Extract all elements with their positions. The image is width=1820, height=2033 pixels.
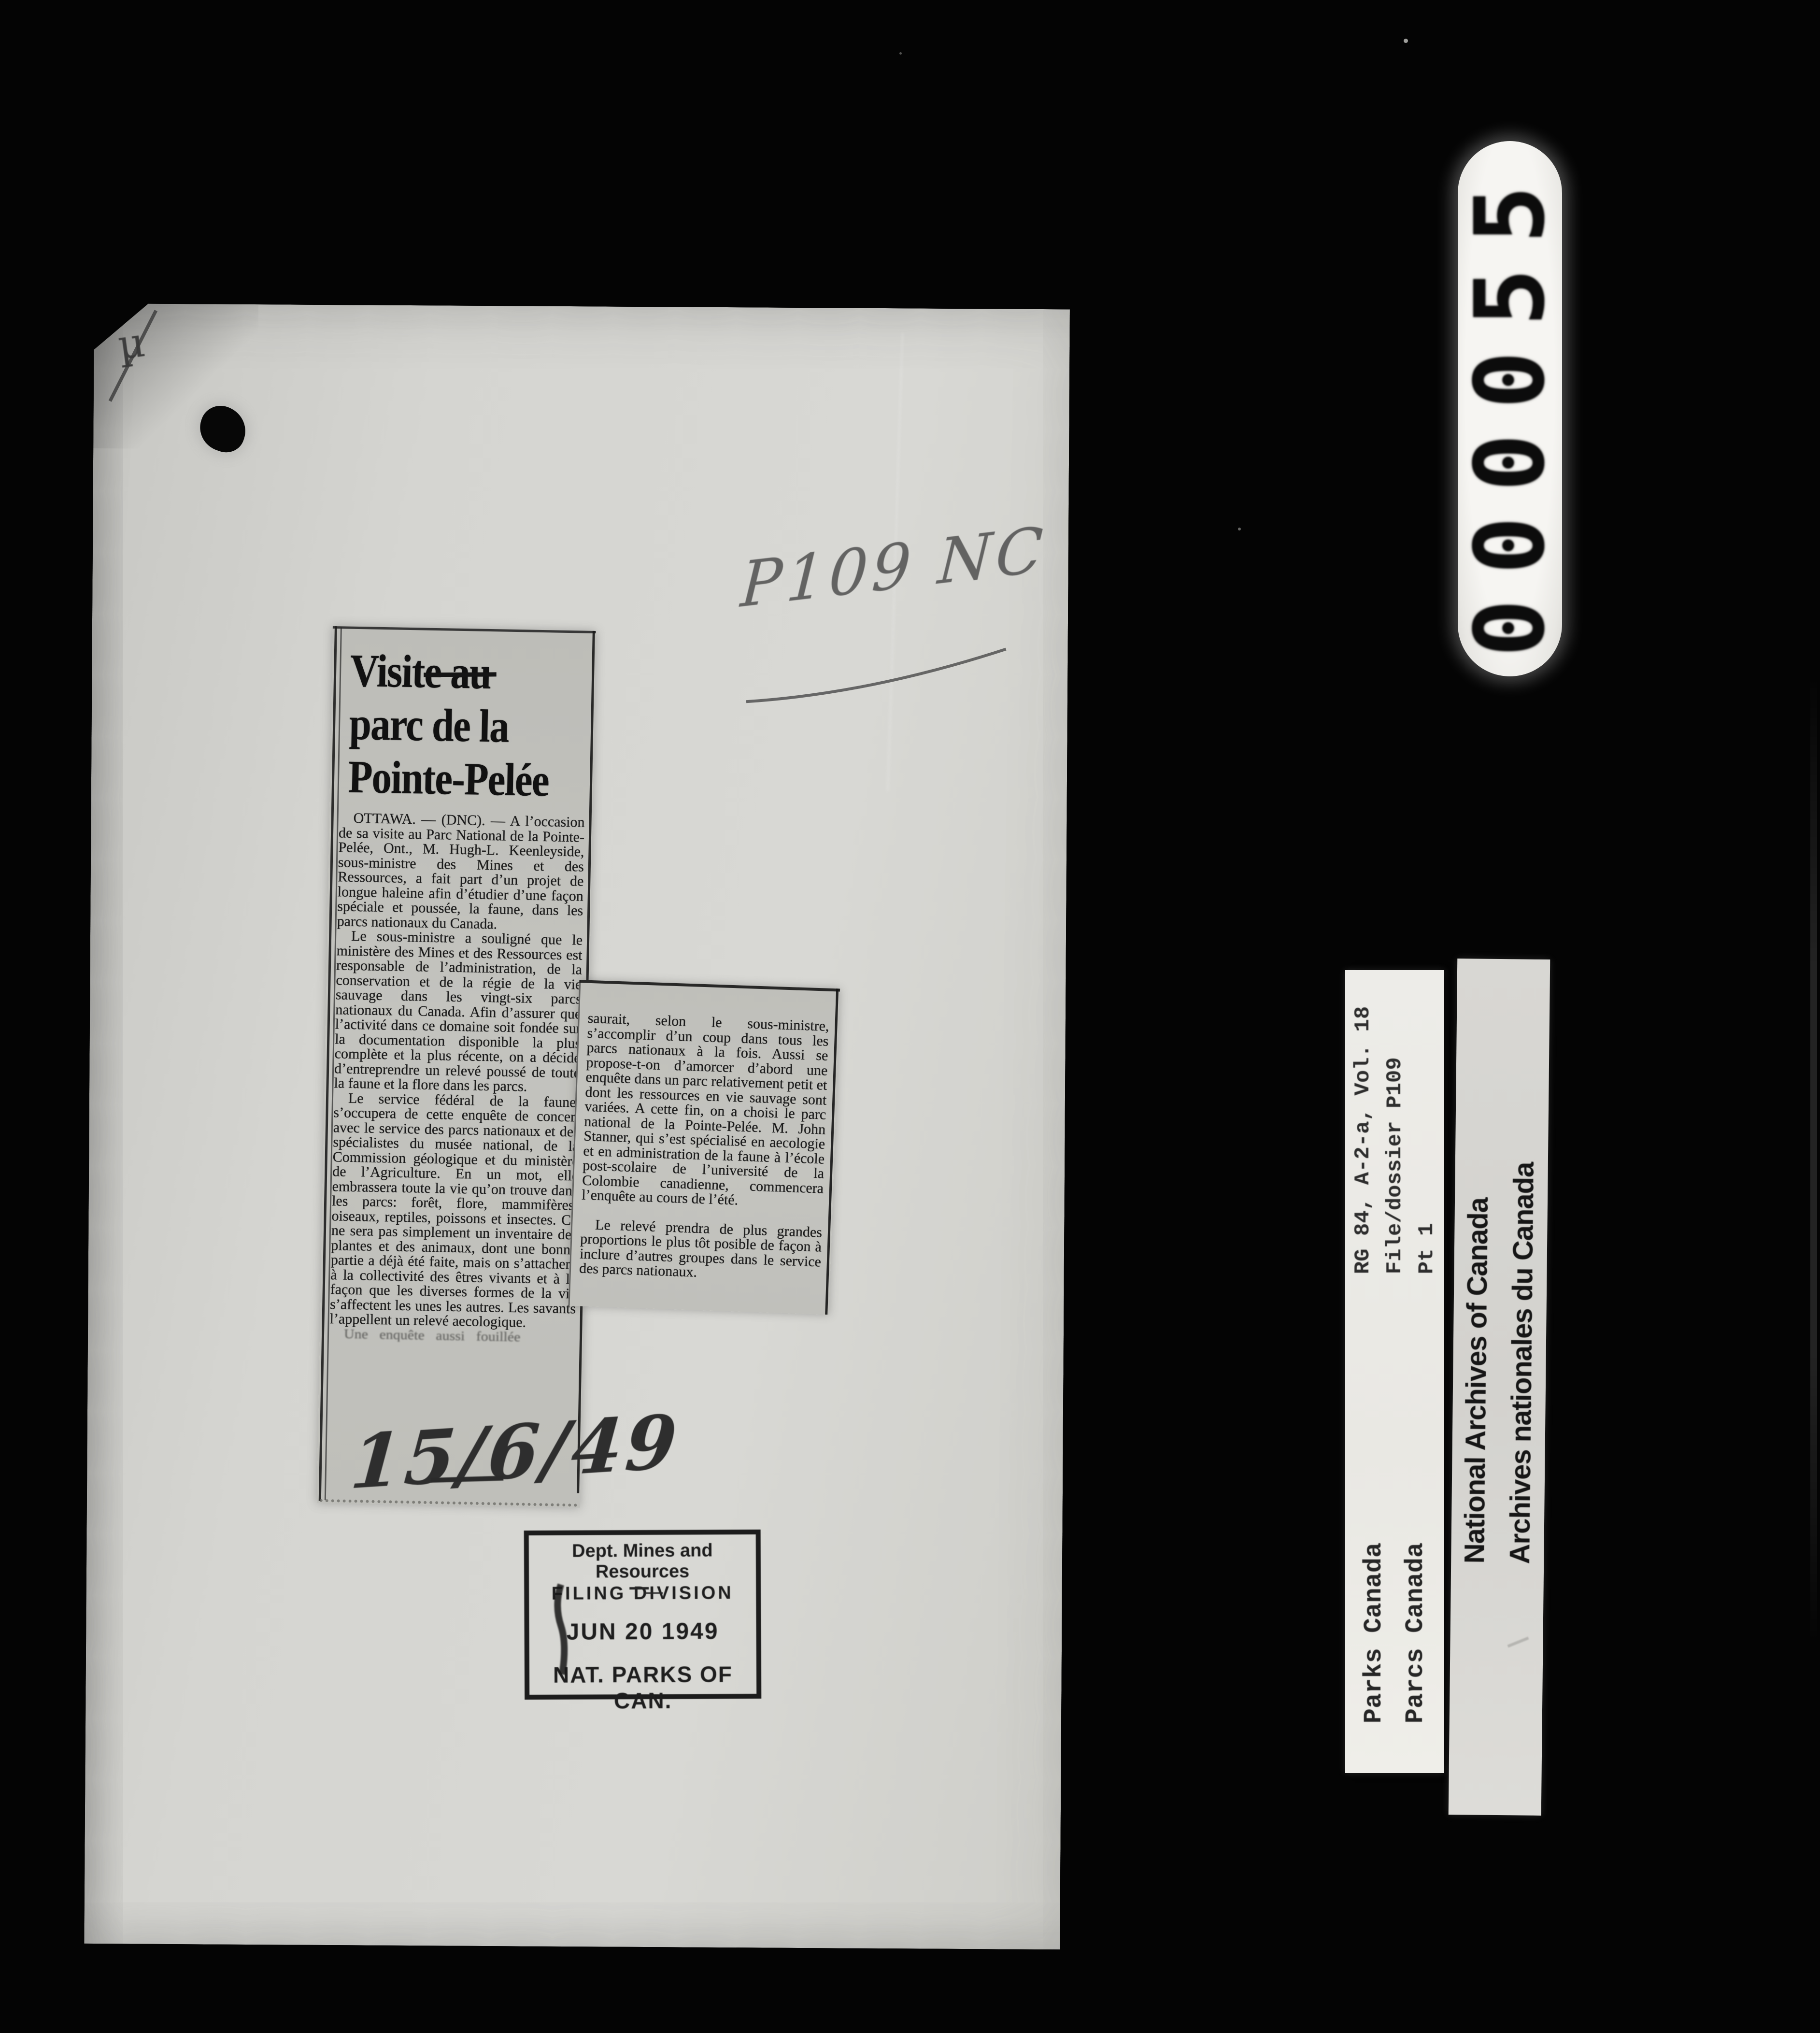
clipping-paragraph: Le sous-ministre a souligné que le minis… xyxy=(334,929,583,1095)
headline-word: Visite xyxy=(350,644,441,698)
headline-line-2: parc de la xyxy=(349,697,554,754)
headline-line-1: Visite au xyxy=(350,644,555,701)
microfilm-scan: µ P109 NC Visite au parc de la Pointe-Pe… xyxy=(0,0,1820,2033)
document-page: µ P109 NC Visite au parc de la Pointe-Pe… xyxy=(84,303,1070,1949)
newspaper-clipping-col1: Visite au parc de la Pointe-Pelée OTTAWA… xyxy=(317,626,596,1508)
clipping-paragraph: Le service fédéral de la faune, s’occupe… xyxy=(329,1091,580,1331)
clipping-paragraph: saurait, selon le sous-ministre, s’accom… xyxy=(582,1011,829,1211)
headline-struck-word: au xyxy=(450,646,491,699)
stamp-tick-marks xyxy=(629,1587,649,1589)
receipt-stamp: Dept. Mines and Resources FILING DIVISIO… xyxy=(524,1530,762,1700)
parks-line-fr: Parcs Canada xyxy=(1395,1543,1436,1723)
frame-counter: 000055 xyxy=(1458,141,1562,676)
reference-line: Pt 1 xyxy=(1411,1006,1443,1274)
stamp-ink-blot xyxy=(546,1582,581,1678)
page-hole xyxy=(194,401,252,458)
nac-line-en: National Archives of Canada xyxy=(1452,1161,1502,1564)
parks-canada-label: Parks Canada Parcs Canada xyxy=(1353,1543,1436,1723)
dust-speck xyxy=(899,52,902,55)
clipping-paragraph: OTTAWA. — (DNC). — A l’occasion de sa vi… xyxy=(337,811,584,933)
nac-line-fr: Archives nationales du Canada xyxy=(1497,1162,1547,1564)
newspaper-clipping-col2: saurait, selon le sous-ministre, s’accom… xyxy=(568,980,840,1315)
pencil-corner-mark: µ xyxy=(115,318,147,369)
reference-line: RG 84, A-2-a, Vol. 18 xyxy=(1347,1006,1379,1274)
national-archives-label: National Archives of Canada Archives nat… xyxy=(1452,1161,1547,1564)
reference-line: File/dossier P109 xyxy=(1379,1006,1411,1274)
archival-reference-label: RG 84, A-2-a, Vol. 18 File/dossier P109 … xyxy=(1347,1006,1443,1274)
archival-reference-strip: RG 84, A-2-a, Vol. 18 File/dossier P109 … xyxy=(1345,970,1444,1773)
headline-line-3: Pointe-Pelée xyxy=(348,750,553,807)
dust-speck xyxy=(1404,39,1408,43)
stamp-department-line: Dept. Mines and Resources xyxy=(529,1540,756,1583)
dust-speck xyxy=(1238,528,1241,530)
frame-counter-digits: 000055 xyxy=(1454,160,1566,657)
clipping-headline: Visite au parc de la Pointe-Pelée xyxy=(329,626,559,807)
film-edge-streak xyxy=(1810,676,1817,1643)
clipping-column1-text: OTTAWA. — (DNC). — A l’occasion de sa vi… xyxy=(320,811,593,1346)
national-archives-strip: National Archives of Canada Archives nat… xyxy=(1449,959,1550,1816)
parks-line-en: Parks Canada xyxy=(1353,1543,1395,1723)
clipping-paragraph: Le relevé prendra de plus grandes propor… xyxy=(579,1217,823,1284)
clipping-column2-text: saurait, selon le sous-ministre, s’accom… xyxy=(569,980,840,1285)
